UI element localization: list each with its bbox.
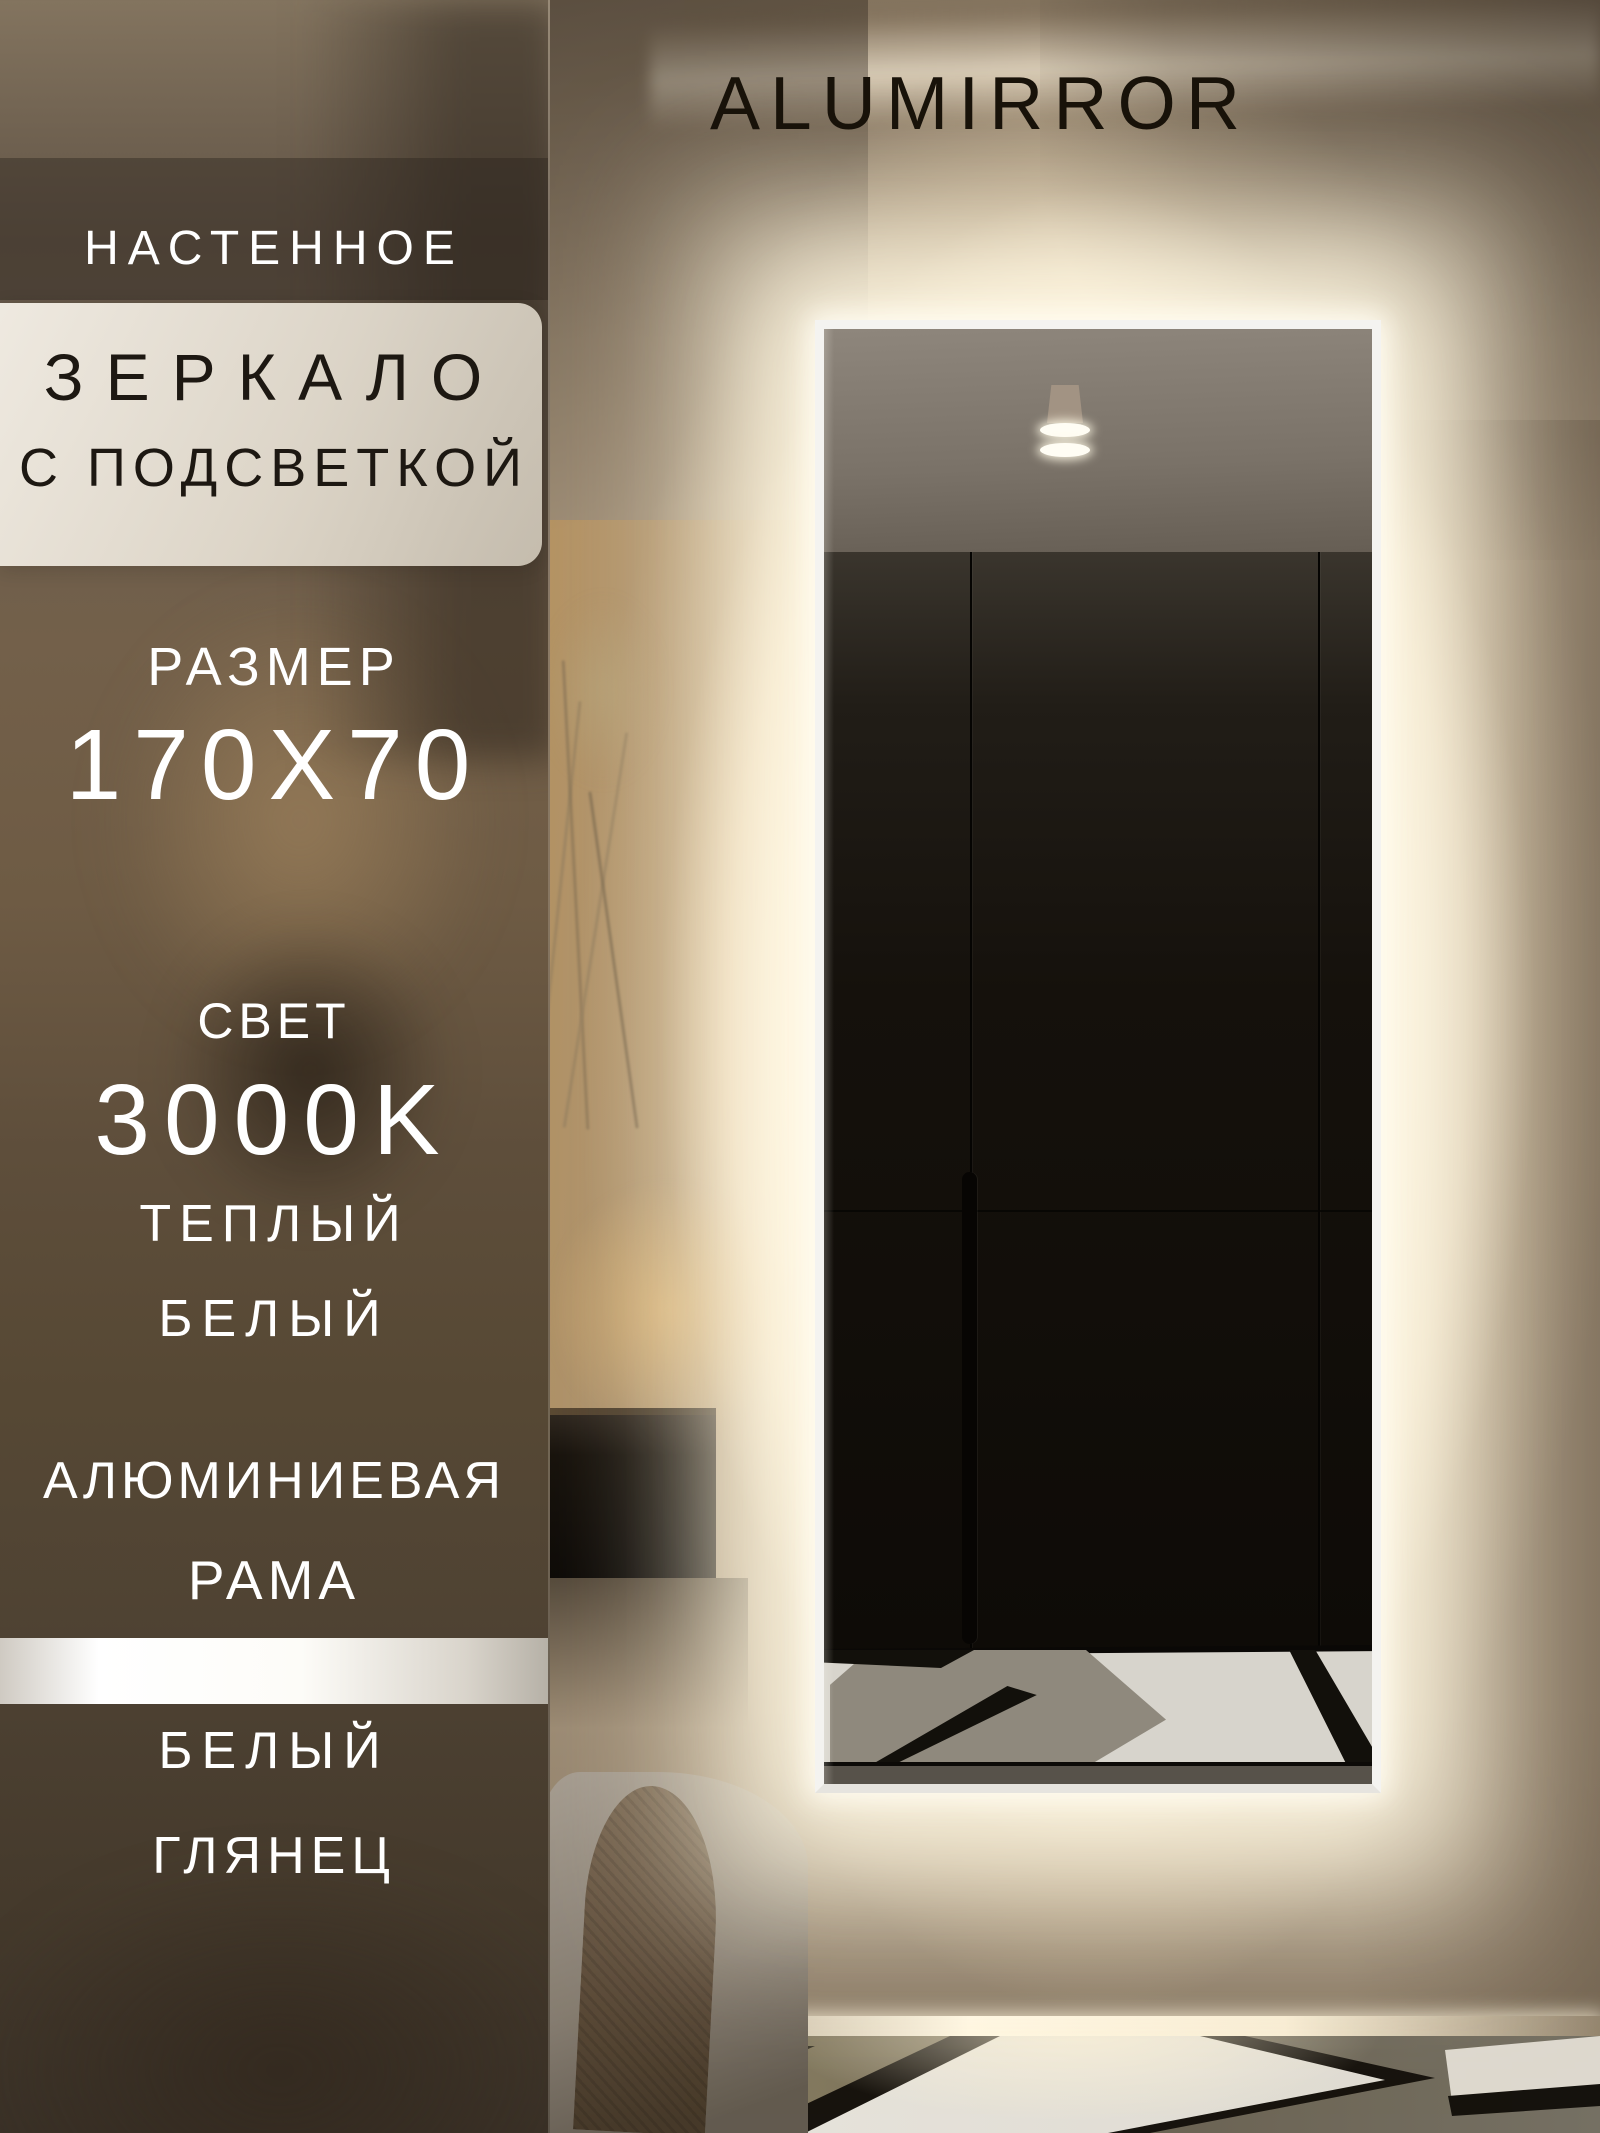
- lamp-body: [1047, 385, 1083, 423]
- dried-plant: [548, 610, 678, 1130]
- light-temperature-value: 3000K: [0, 1070, 548, 1170]
- reflected-floor: [824, 1650, 1372, 1784]
- finish-line2: ГЛЯНЕЦ: [0, 1830, 548, 1882]
- sofa-armrest: [540, 1772, 808, 2133]
- wardrobe-handle-groove: [962, 1172, 977, 1644]
- product-banner: ALUMIRROR НАСТЕННОЕ ЗЕРКАЛО С ПОДСВЕТКОЙ…: [0, 0, 1600, 2133]
- light-description-line2: БЕЛЫЙ: [0, 1293, 548, 1345]
- ceiling-lamp-reflection: [1040, 385, 1090, 465]
- throw-blanket: [573, 1783, 723, 2133]
- divider-white-band: [0, 1638, 548, 1704]
- frame-material-line2: РАМА: [0, 1553, 548, 1608]
- reflected-wardrobe: [824, 552, 1372, 1650]
- headline-top: НАСТЕННОЕ: [0, 225, 548, 273]
- reflected-black-stripe: [1154, 1650, 1372, 1768]
- wardrobe-seam-horizontal: [824, 1210, 1372, 1212]
- size-label: РАЗМЕР: [0, 640, 548, 694]
- lamp-disk: [1040, 443, 1090, 457]
- size-value: 170X70: [0, 715, 548, 815]
- info-panel: НАСТЕННОЕ ЗЕРКАЛО С ПОДСВЕТКОЙ РАЗМЕР 17…: [0, 0, 550, 2133]
- light-label: СВЕТ: [0, 996, 548, 1046]
- blurred-sofa: [0, 1860, 550, 2133]
- light-description-line1: ТЕПЛЫЙ: [0, 1198, 548, 1250]
- product-name: ЗЕРКАЛО: [0, 344, 548, 410]
- mirror-reflection: [824, 329, 1372, 1784]
- console-shelf: [548, 1408, 716, 1578]
- lamp-disk: [1040, 423, 1090, 437]
- frame-material-line1: АЛЮМИНИЕВАЯ: [0, 1455, 548, 1507]
- wardrobe-seam: [1318, 552, 1320, 1650]
- edge-light-leak: [824, 329, 834, 1784]
- brand-title: ALUMIRROR: [560, 66, 1400, 141]
- led-backlit-mirror: [815, 320, 1381, 1793]
- console-shadow: [548, 1578, 748, 1728]
- finish-line1: БЕЛЫЙ: [0, 1725, 548, 1777]
- warm-wall-spot: [548, 1180, 788, 1440]
- reflected-ceiling: [824, 329, 1372, 552]
- reflected-skirting: [824, 1762, 1372, 1784]
- product-subtitle: С ПОДСВЕТКОЙ: [0, 441, 548, 495]
